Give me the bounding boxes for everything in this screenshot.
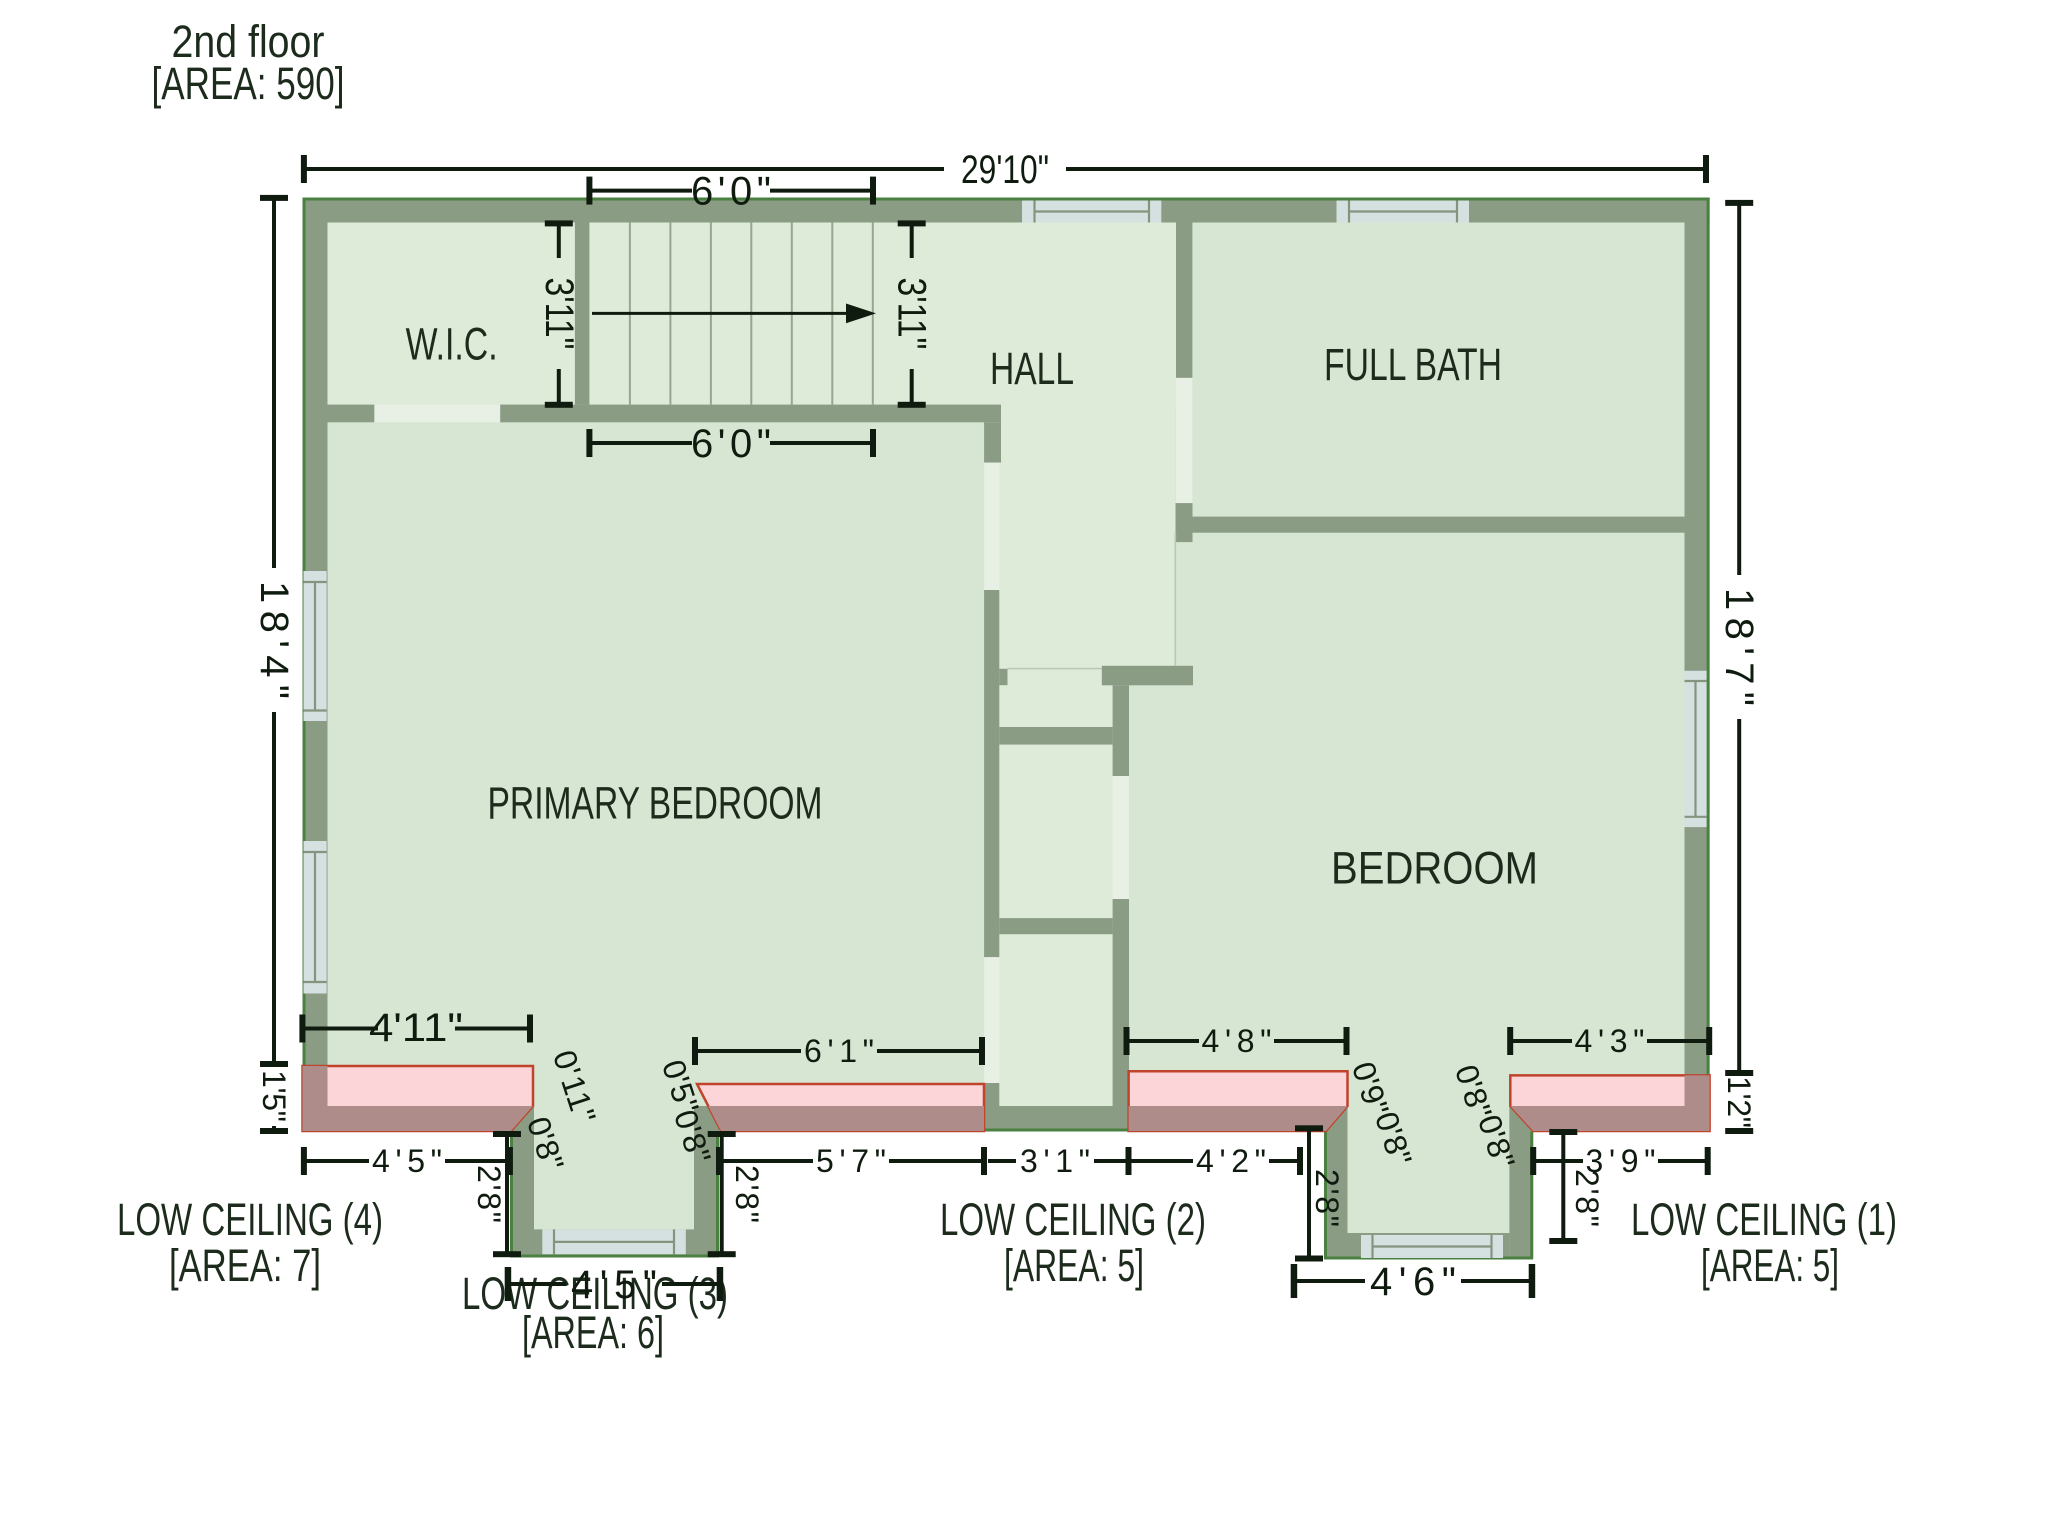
svg-text:2'8": 2'8" — [729, 1165, 765, 1223]
svg-text:2'8": 2'8" — [1309, 1169, 1345, 1227]
svg-text:2'8": 2'8" — [471, 1165, 507, 1223]
svg-text:4'5": 4'5" — [372, 1143, 442, 1179]
svg-text:W.I.C.: W.I.C. — [406, 319, 498, 370]
svg-text:[AREA: 7]: [AREA: 7] — [169, 1240, 321, 1291]
svg-text:3'11": 3'11" — [537, 278, 581, 350]
svg-text:4'6": 4'6" — [1370, 1260, 1456, 1304]
svg-text:3'11": 3'11" — [890, 278, 934, 350]
svg-text:FULL BATH: FULL BATH — [1324, 339, 1502, 390]
svg-text:3'1": 3'1" — [1020, 1143, 1090, 1179]
svg-text:6'0": 6'0" — [691, 422, 771, 466]
svg-text:1'5": 1'5" — [256, 1070, 292, 1122]
svg-text:2'8": 2'8" — [1569, 1169, 1605, 1227]
svg-text:4'2": 4'2" — [1196, 1143, 1266, 1179]
svg-text:[AREA: 6]: [AREA: 6] — [522, 1307, 664, 1358]
svg-text:6'0": 6'0" — [691, 169, 771, 213]
svg-text:[AREA: 5]: [AREA: 5] — [1701, 1240, 1839, 1291]
svg-text:29'10": 29'10" — [961, 148, 1049, 192]
svg-text:LOW CEILING (2): LOW CEILING (2) — [940, 1194, 1206, 1245]
svg-text:[AREA: 5]: [AREA: 5] — [1004, 1240, 1144, 1291]
svg-text:PRIMARY BEDROOM: PRIMARY BEDROOM — [488, 778, 823, 829]
svg-text:HALL: HALL — [990, 343, 1074, 394]
svg-text:4'8": 4'8" — [1202, 1023, 1272, 1059]
svg-text:5'7": 5'7" — [816, 1143, 886, 1179]
svg-text:6'1": 6'1" — [804, 1033, 874, 1069]
svg-text:[AREA: 590]: [AREA: 590] — [152, 58, 345, 109]
svg-text:LOW CEILING (4): LOW CEILING (4) — [117, 1194, 383, 1245]
svg-text:1'2": 1'2" — [1721, 1076, 1757, 1128]
svg-text:BEDROOM: BEDROOM — [1331, 843, 1538, 894]
svg-text:LOW CEILING (1): LOW CEILING (1) — [1631, 1194, 1897, 1245]
svg-text:4'3": 4'3" — [1575, 1023, 1645, 1059]
svg-text:4'11": 4'11" — [369, 1006, 463, 1050]
svg-text:4'5": 4'5" — [571, 1263, 657, 1307]
